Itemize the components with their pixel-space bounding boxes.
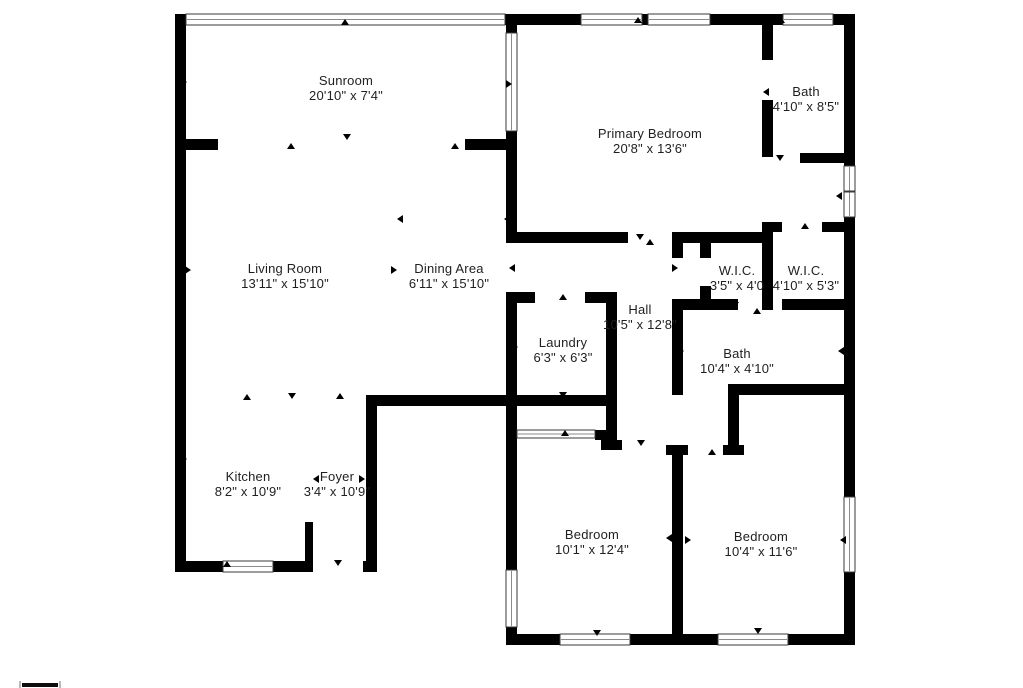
wall — [606, 292, 617, 440]
wall — [178, 139, 218, 150]
wall — [506, 292, 535, 303]
opening-tick-icon — [334, 560, 342, 566]
wall — [800, 153, 855, 163]
wall — [672, 455, 683, 645]
wall — [822, 222, 855, 232]
wall — [762, 232, 773, 310]
wall — [672, 232, 683, 258]
opening-tick-icon — [666, 534, 672, 542]
opening-tick-icon — [336, 393, 344, 399]
wall — [762, 25, 773, 60]
opening-tick-icon — [836, 192, 842, 200]
wall — [465, 139, 512, 150]
wall — [601, 440, 622, 450]
scale-bar-end-mark — [59, 681, 61, 688]
wall — [672, 232, 772, 243]
opening-tick-icon — [359, 475, 365, 483]
floorplan-canvas: Sunroom20'10" x 7'4"Primary Bedroom20'8"… — [0, 0, 1023, 688]
opening-tick-icon — [185, 266, 191, 274]
opening-tick-icon — [287, 143, 295, 149]
opening-tick-icon — [288, 393, 296, 399]
opening-tick-icon — [776, 155, 784, 161]
opening-tick-icon — [708, 449, 716, 455]
opening-tick-icon — [754, 628, 762, 634]
wall — [595, 430, 613, 440]
wall — [175, 25, 186, 572]
floorplan-drawing — [0, 0, 1023, 688]
scale-bar — [22, 683, 58, 687]
wall — [666, 445, 688, 455]
wall — [305, 522, 313, 565]
opening-tick-icon — [313, 475, 319, 483]
opening-tick-icon — [646, 239, 654, 245]
wall — [506, 395, 613, 406]
opening-tick-icon — [636, 234, 644, 240]
opening-tick-icon — [672, 264, 678, 272]
scale-bar-end-mark — [19, 681, 21, 688]
opening-tick-icon — [685, 536, 691, 544]
opening-tick-icon — [801, 223, 809, 229]
wall — [366, 395, 377, 572]
opening-tick-icon — [243, 394, 251, 400]
opening-tick-icon — [397, 215, 403, 223]
opening-tick-icon — [840, 536, 846, 544]
wall — [728, 384, 855, 395]
wall — [366, 395, 517, 406]
opening-tick-icon — [753, 308, 761, 314]
wall — [506, 232, 628, 243]
opening-tick-icon — [559, 294, 567, 300]
wall — [782, 299, 855, 310]
wall — [672, 299, 683, 395]
wall — [762, 222, 782, 232]
opening-tick-icon — [637, 440, 645, 446]
opening-tick-icon — [763, 88, 769, 96]
opening-tick-icon — [509, 264, 515, 272]
wall — [700, 238, 711, 258]
wall — [762, 100, 773, 157]
opening-tick-icon — [838, 347, 844, 355]
opening-tick-icon — [451, 143, 459, 149]
opening-tick-icon — [391, 266, 397, 274]
wall — [723, 445, 744, 455]
opening-tick-icon — [343, 134, 351, 140]
